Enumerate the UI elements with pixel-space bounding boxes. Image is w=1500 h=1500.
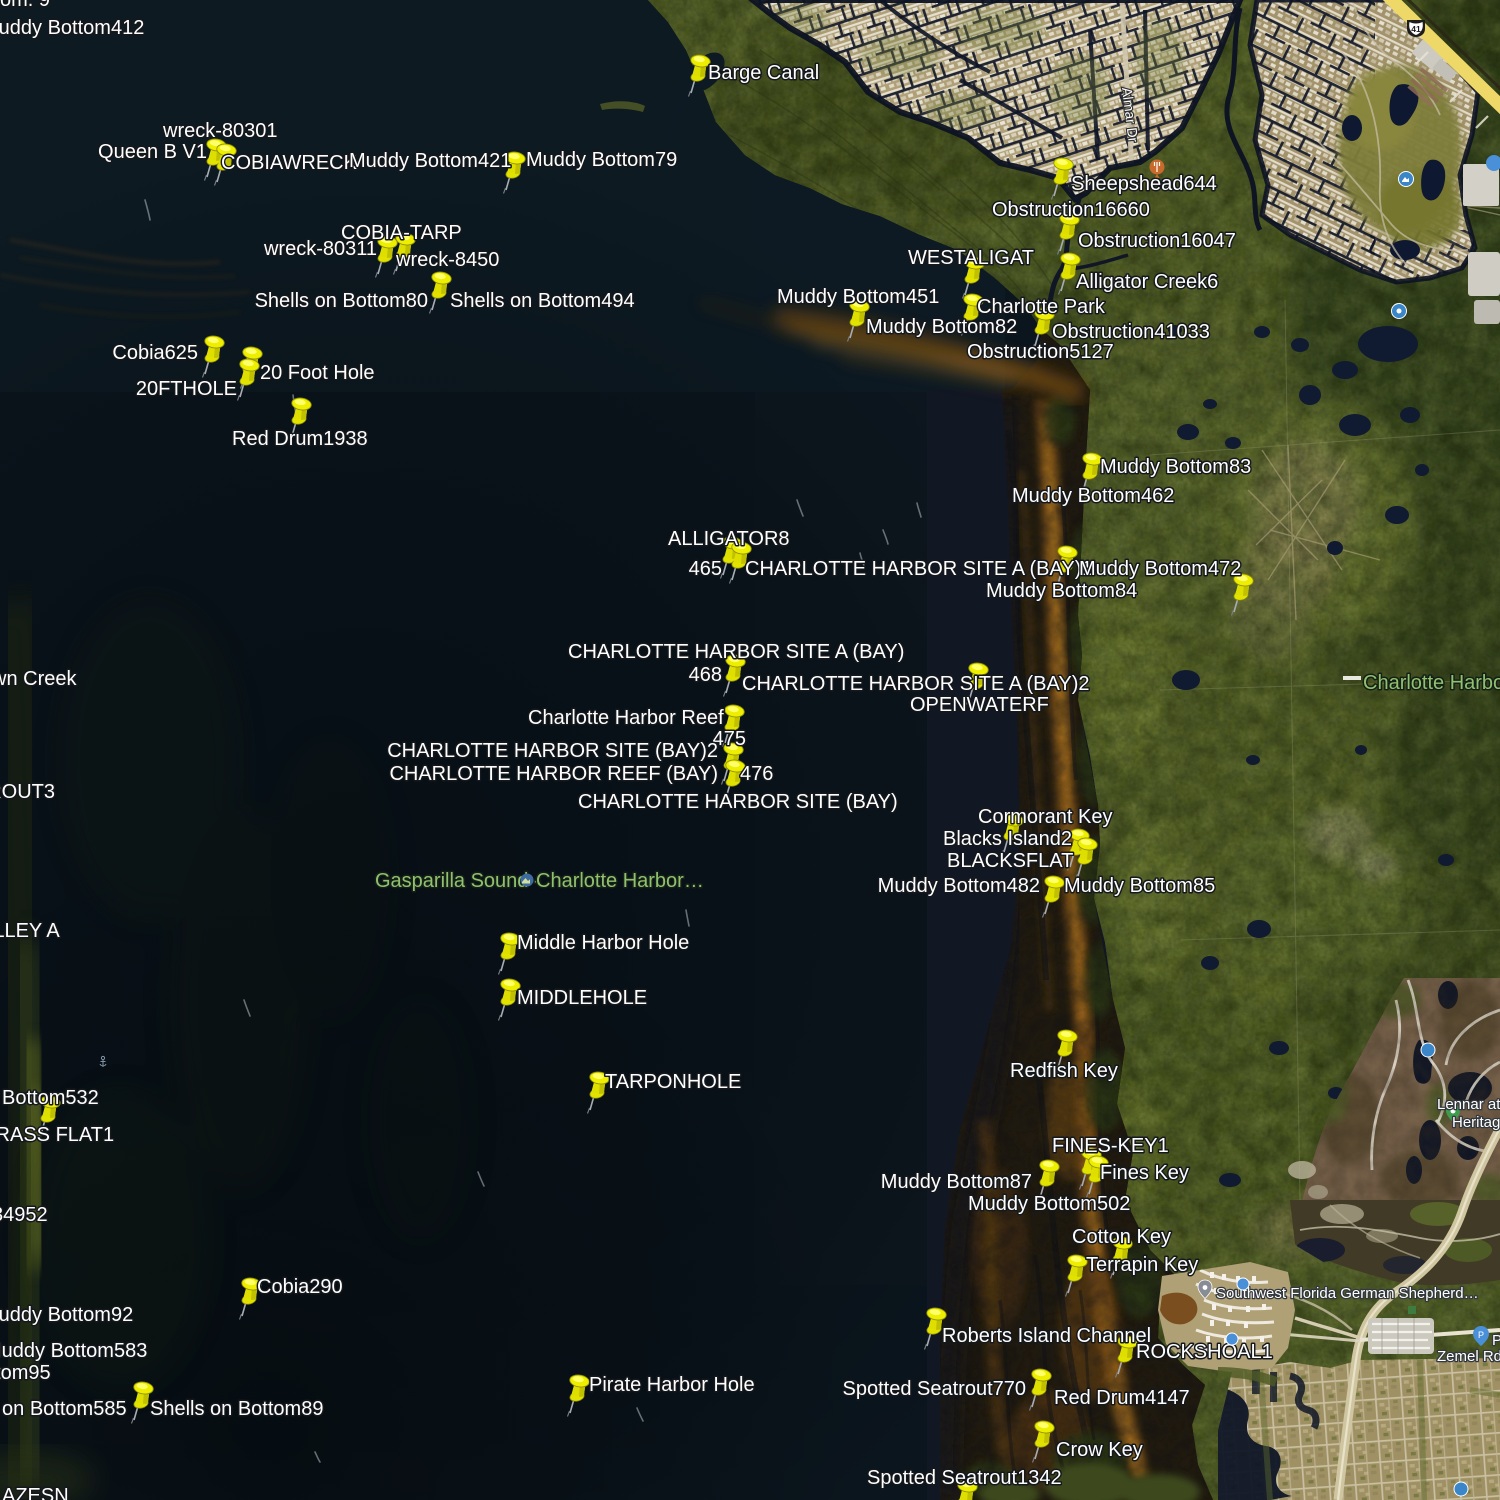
svg-text:AZESN: AZESN	[2, 1485, 69, 1500]
svg-text:WESTALIGAT: WESTALIGAT	[908, 247, 1034, 269]
svg-text:Southwest Florida German Sheph: Southwest Florida German Shepherd…	[1216, 1285, 1479, 1302]
svg-text:Bottom532: Bottom532	[2, 1087, 99, 1109]
svg-text:Muddy Bottom462: Muddy Bottom462	[1012, 485, 1174, 507]
svg-text:Crow Key: Crow Key	[1056, 1439, 1143, 1461]
svg-text:476: 476	[740, 763, 773, 785]
svg-text:Terrapin Key: Terrapin Key	[1086, 1254, 1198, 1276]
svg-text:Roberts Island Channel: Roberts Island Channel	[942, 1325, 1151, 1347]
svg-text:Shells on Bottom585: Shells on Bottom585	[0, 1398, 127, 1420]
svg-text:Queen B V1: Queen B V1	[98, 141, 207, 163]
svg-text:20 Foot Hole: 20 Foot Hole	[260, 362, 375, 384]
svg-text:Red Drum4147: Red Drum4147	[1054, 1387, 1190, 1409]
svg-text:FINES-KEY1: FINES-KEY1	[1052, 1135, 1169, 1157]
svg-text:CHARLOTTE HARBOR SITE A (BAY): CHARLOTTE HARBOR SITE A (BAY)	[568, 641, 904, 663]
svg-text:MIDDLEHOLE: MIDDLEHOLE	[517, 987, 647, 1009]
svg-text:Blacks Island2: Blacks Island2	[943, 828, 1072, 850]
svg-text:P: P	[1478, 1330, 1484, 1340]
svg-text:CHARLOTTE HARBOR SITE A (BAY)1: CHARLOTTE HARBOR SITE A (BAY)1	[745, 558, 1092, 580]
svg-text:Muddy Bottom472: Muddy Bottom472	[1079, 558, 1241, 580]
svg-text:Muddy Bottom583: Muddy Bottom583	[0, 1340, 147, 1362]
svg-text:Muddy Bottom502: Muddy Bottom502	[968, 1193, 1130, 1215]
svg-text:Gasparilla Sound -: Gasparilla Sound -	[375, 870, 541, 892]
svg-text:Cotton Key: Cotton Key	[1072, 1226, 1171, 1248]
svg-text:wn Creek: wn Creek	[0, 668, 77, 690]
svg-text:ALLEY A: ALLEY A	[0, 920, 60, 942]
svg-text:Shells on Bottom80: Shells on Bottom80	[255, 290, 428, 312]
svg-text:Spotted Seatrout770: Spotted Seatrout770	[843, 1378, 1026, 1400]
svg-text:Muddy Bottom421: Muddy Bottom421	[349, 150, 511, 172]
svg-text:Bottom95: Bottom95	[0, 1362, 51, 1384]
svg-text:Muddy Bottom412: Muddy Bottom412	[0, 17, 144, 39]
svg-text:COBIAWRECK: COBIAWRECK	[221, 152, 358, 174]
svg-text:GRASS FLAT1: GRASS FLAT1	[0, 1124, 114, 1146]
svg-text:Po: Po	[1492, 1332, 1500, 1349]
svg-text:CHARLOTTE HARBOR SITE (BAY): CHARLOTTE HARBOR SITE (BAY)	[578, 791, 898, 813]
svg-text:TROUT3: TROUT3	[0, 781, 55, 803]
svg-text:ROCKSHOAL1: ROCKSHOAL1	[1136, 1341, 1273, 1363]
svg-text:Redfish Key: Redfish Key	[1010, 1060, 1118, 1082]
svg-text:Alligator Creek6: Alligator Creek6	[1076, 271, 1218, 293]
svg-text:Pirate Harbor Hole: Pirate Harbor Hole	[589, 1374, 755, 1396]
svg-text:Shells on Bottom89: Shells on Bottom89	[150, 1398, 323, 1420]
svg-text:Red Drum1938: Red Drum1938	[232, 428, 368, 450]
svg-text:Cormorant Key: Cormorant Key	[978, 806, 1113, 828]
svg-text:ALLIGATOR8: ALLIGATOR8	[668, 528, 790, 550]
svg-text:Muddy Bottom79: Muddy Bottom79	[526, 149, 677, 171]
svg-text:Shells on Bottom494: Shells on Bottom494	[450, 290, 635, 312]
svg-text:41: 41	[1411, 24, 1421, 34]
svg-text:OPENWATERF: OPENWATERF	[910, 694, 1049, 716]
svg-text:20FTHOLE: 20FTHOLE	[136, 378, 237, 400]
svg-text:om. 9: om. 9	[0, 0, 50, 11]
svg-text:Spotted Seatrout1342: Spotted Seatrout1342	[867, 1467, 1062, 1489]
svg-text:Muddy Bottom85: Muddy Bottom85	[1064, 875, 1215, 897]
svg-text:Muddy Bottom82: Muddy Bottom82	[866, 316, 1017, 338]
svg-text:Fines Key: Fines Key	[1100, 1162, 1189, 1184]
svg-text:Zemel Rd: Zemel Rd	[1437, 1348, 1500, 1365]
svg-text:Charlotte Harbor…: Charlotte Harbor…	[536, 870, 704, 892]
svg-text:wreck-80311: wreck-80311	[263, 238, 377, 260]
svg-text:wreck-80301: wreck-80301	[162, 120, 278, 142]
svg-text:34952: 34952	[0, 1204, 48, 1226]
svg-text:465: 465	[689, 558, 722, 580]
svg-text:Muddy Bottom92: Muddy Bottom92	[0, 1304, 133, 1326]
svg-text:Muddy Bottom451: Muddy Bottom451	[777, 286, 939, 308]
svg-text:Middle Harbor Hole: Middle Harbor Hole	[517, 932, 689, 954]
svg-text:CHARLOTTE HARBOR SITE A (BAY)2: CHARLOTTE HARBOR SITE A (BAY)2	[742, 673, 1089, 695]
svg-text:BLACKSFLAT: BLACKSFLAT	[947, 850, 1073, 872]
svg-text:Charlotte Harbor Reef: Charlotte Harbor Reef	[528, 707, 724, 729]
svg-text:Cobia625: Cobia625	[112, 342, 198, 364]
svg-text:Muddy Bottom87: Muddy Bottom87	[881, 1171, 1032, 1193]
svg-text:Obstruction16660: Obstruction16660	[992, 199, 1150, 221]
svg-text:Muddy Bottom83: Muddy Bottom83	[1100, 456, 1251, 478]
svg-text:TARPONHOLE: TARPONHOLE	[605, 1071, 741, 1093]
svg-text:Barge Canal: Barge Canal	[708, 62, 819, 84]
svg-text:Muddy Bottom84: Muddy Bottom84	[986, 580, 1137, 602]
svg-text:Cobia290: Cobia290	[257, 1276, 343, 1298]
svg-text:Obstruction16047: Obstruction16047	[1078, 230, 1236, 252]
svg-text:Obstruction5127: Obstruction5127	[967, 341, 1114, 363]
svg-text:CHARLOTTE HARBOR REEF (BAY): CHARLOTTE HARBOR REEF (BAY)	[389, 763, 718, 785]
svg-text:Sheepshead644: Sheepshead644	[1071, 173, 1217, 195]
svg-text:Muddy Bottom482: Muddy Bottom482	[878, 875, 1040, 897]
svg-text:Charlotte Park: Charlotte Park	[977, 296, 1106, 318]
svg-text:CHARLOTTE HARBOR SITE (BAY)2: CHARLOTTE HARBOR SITE (BAY)2	[387, 740, 718, 762]
svg-text:Lennar at H: Lennar at H	[1437, 1096, 1500, 1113]
svg-text:Obstruction41033: Obstruction41033	[1052, 321, 1210, 343]
svg-text:wreck-8450: wreck-8450	[395, 249, 499, 271]
svg-text:Charlotte Harbor P: Charlotte Harbor P	[1363, 672, 1500, 694]
svg-text:468: 468	[689, 664, 722, 686]
svg-text:Heritag: Heritag	[1452, 1114, 1500, 1131]
